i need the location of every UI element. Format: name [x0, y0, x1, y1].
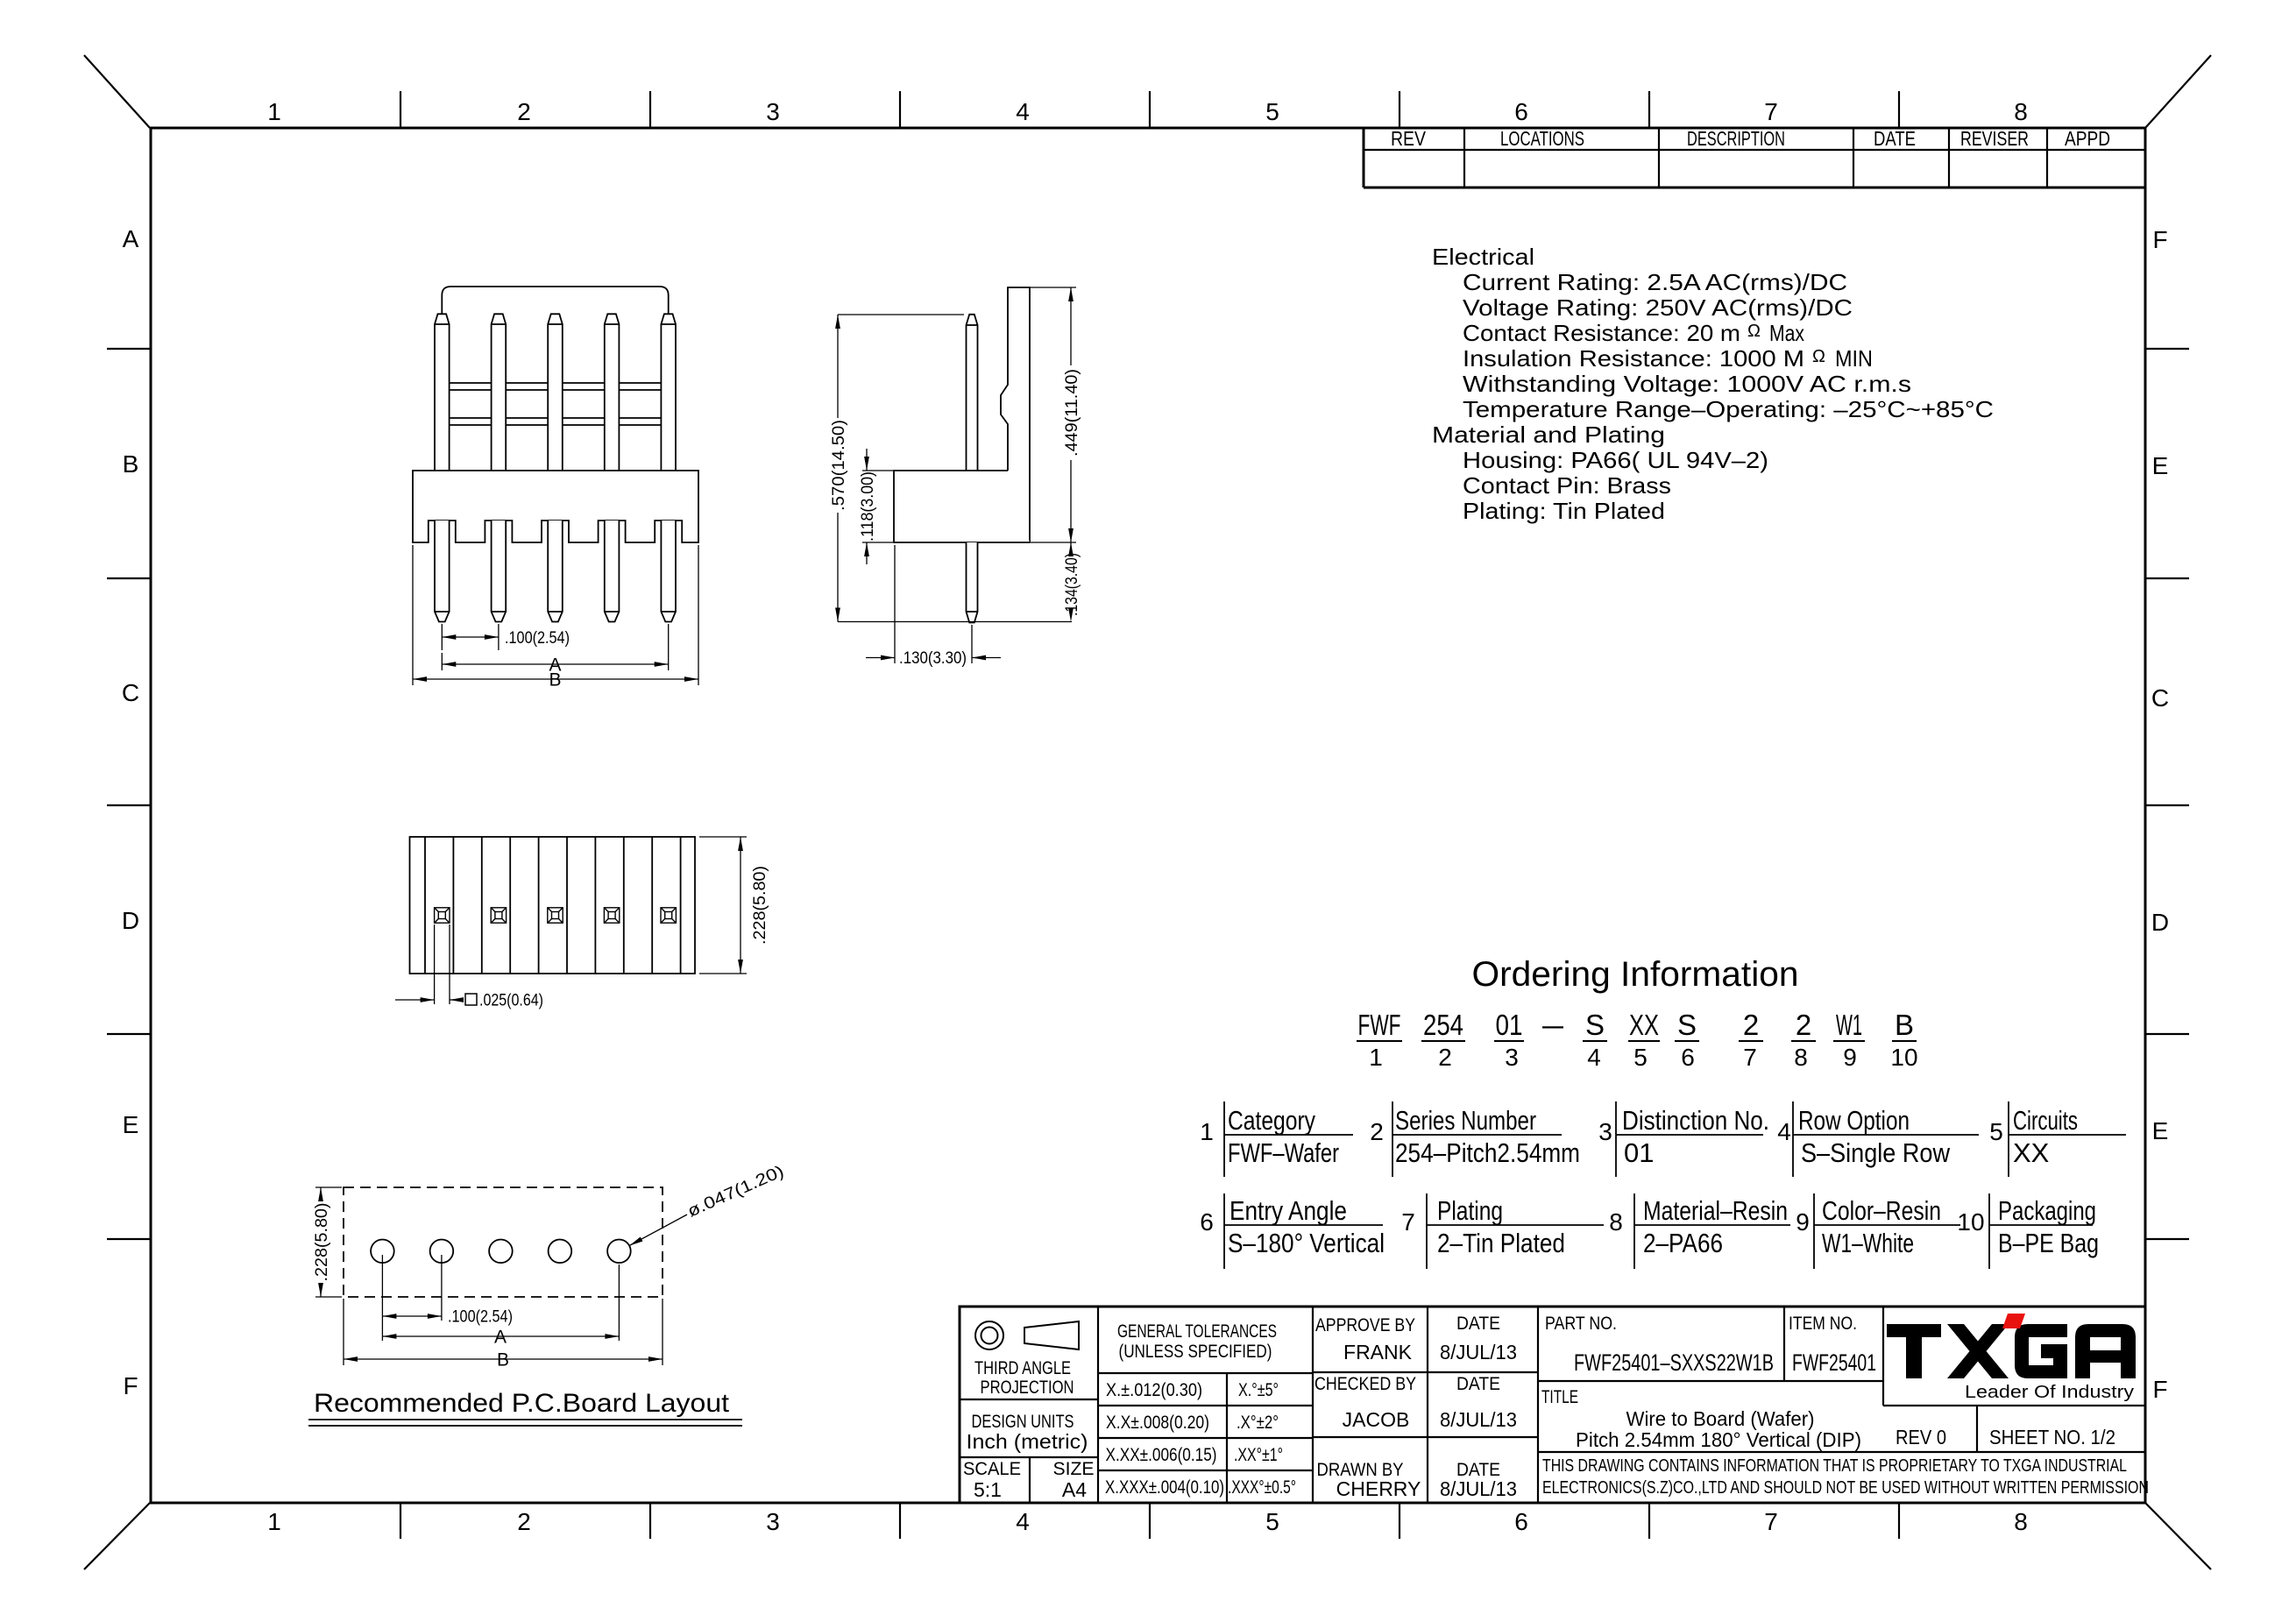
svg-text:D: D [122, 907, 139, 934]
svg-text:5:1: 5:1 [974, 1478, 1002, 1501]
svg-text:E: E [2152, 1117, 2169, 1144]
svg-text:XX: XX [2013, 1137, 2050, 1168]
svg-text:TITLE: TITLE [1541, 1387, 1578, 1407]
svg-text:5: 5 [1265, 1508, 1279, 1535]
svg-text:C: C [2151, 684, 2169, 712]
svg-text:3: 3 [766, 98, 780, 125]
svg-text:REV 0: REV 0 [1896, 1426, 1946, 1448]
svg-text:Ordering Information: Ordering Information [1472, 955, 1799, 994]
svg-text:254: 254 [1423, 1009, 1463, 1041]
svg-text:JACOB: JACOB [1343, 1408, 1410, 1431]
svg-text:4: 4 [1587, 1044, 1601, 1071]
svg-text:5: 5 [1265, 98, 1279, 125]
svg-text:.XX°±1°: .XX°±1° [1234, 1445, 1283, 1465]
svg-text:FWF: FWF [1358, 1009, 1401, 1041]
svg-text:3: 3 [1598, 1118, 1612, 1145]
svg-text:FWF25401–SXXS22W1B: FWF25401–SXXS22W1B [1574, 1349, 1774, 1376]
svg-text:Housing: PA66( UL 94V–2): Housing: PA66( UL 94V–2) [1463, 447, 1768, 473]
svg-text:.570(14.50): .570(14.50) [830, 420, 848, 511]
svg-text:1: 1 [267, 1508, 281, 1535]
svg-text:Plating: Tin Plated: Plating: Tin Plated [1463, 498, 1665, 524]
svg-text:MIN: MIN [1835, 345, 1873, 372]
svg-text:X.XX±.006(0.15): X.XX±.006(0.15) [1106, 1445, 1217, 1465]
svg-text:4: 4 [1016, 1508, 1030, 1535]
svg-text:DESCRIPTION: DESCRIPTION [1687, 127, 1785, 150]
svg-text:Wire to Board (Wafer): Wire to Board (Wafer) [1626, 1407, 1815, 1430]
svg-text:1: 1 [1200, 1118, 1214, 1145]
svg-text:2: 2 [1796, 1009, 1811, 1041]
svg-text:CHECKED BY: CHECKED BY [1315, 1374, 1416, 1394]
svg-text:.XXX°±0.5°: .XXX°±0.5° [1228, 1477, 1296, 1498]
svg-text:2: 2 [1743, 1009, 1759, 1041]
svg-text:.118(3.00): .118(3.00) [859, 471, 877, 542]
svg-text:Current Rating: 2.5A AC(rms): Current Rating: 2.5A AC(rms)/DC [1463, 269, 1847, 295]
svg-text:(UNLESS SPECIFIED): (UNLESS SPECIFIED) [1119, 1342, 1272, 1362]
svg-text:3: 3 [766, 1508, 780, 1535]
svg-text:PART NO.: PART NO. [1545, 1314, 1617, 1334]
svg-text:6: 6 [1681, 1044, 1695, 1071]
svg-text:F: F [2152, 226, 2167, 253]
svg-text:W1: W1 [1836, 1009, 1862, 1041]
svg-text:Circuits: Circuits [2013, 1105, 2078, 1136]
svg-text:C: C [122, 679, 139, 706]
svg-text:S–Single Row: S–Single Row [1801, 1137, 1951, 1168]
svg-text:Material–Resin: Material–Resin [1643, 1195, 1788, 1226]
svg-text:X.±.012(0.30): X.±.012(0.30) [1106, 1380, 1202, 1400]
svg-text:GENERAL TOLERANCES: GENERAL TOLERANCES [1117, 1321, 1277, 1342]
svg-text:APPD: APPD [2065, 127, 2110, 150]
svg-text:E: E [2152, 452, 2169, 479]
svg-text:FRANK: FRANK [1343, 1341, 1413, 1363]
svg-text:3: 3 [1505, 1044, 1519, 1071]
svg-text:PROJECTION: PROJECTION [981, 1378, 1074, 1398]
svg-text:Leader Of Industry: Leader Of Industry [1965, 1383, 2134, 1402]
svg-text:.100(2.54): .100(2.54) [448, 1308, 513, 1327]
svg-text:8/JUL/13: 8/JUL/13 [1440, 1408, 1517, 1431]
svg-text:Withstanding Voltage: 1000V: Withstanding Voltage: 1000V AC r.m.s [1463, 371, 1911, 397]
svg-text:6: 6 [1200, 1208, 1214, 1236]
svg-text:CHERRY: CHERRY [1336, 1477, 1421, 1500]
svg-text:B: B [1895, 1009, 1914, 1041]
svg-text:REV: REV [1391, 127, 1427, 150]
svg-text:FWF–Wafer: FWF–Wafer [1228, 1137, 1339, 1168]
svg-text:Contact Pin: Brass: Contact Pin: Brass [1463, 472, 1671, 499]
svg-text:.134(3.40): .134(3.40) [1063, 553, 1081, 616]
svg-text:THIS DRAWING CONTAINS INFORMAT: THIS DRAWING CONTAINS INFORMATION THAT I… [1542, 1456, 2127, 1476]
svg-text:Voltage Rating: 250V AC(rms): Voltage Rating: 250V AC(rms)/DC [1463, 294, 1853, 321]
svg-text:7: 7 [1401, 1208, 1415, 1236]
svg-text:SCALE: SCALE [963, 1459, 1021, 1479]
svg-text:Entry Angle: Entry Angle [1229, 1195, 1347, 1226]
svg-text:Pitch 2.54mm 180° Vertical: Pitch 2.54mm 180° Vertical (DIP) [1576, 1428, 1861, 1451]
svg-text:10: 10 [1890, 1044, 1917, 1071]
svg-text:B: B [497, 1350, 509, 1371]
svg-text:Insulation Resistance: 1000: Insulation Resistance: 1000 M [1463, 345, 1804, 372]
svg-text:Ω: Ω [1747, 322, 1761, 341]
svg-text:XX: XX [1629, 1009, 1659, 1041]
svg-text:DATE: DATE [1456, 1314, 1500, 1334]
svg-text:E: E [123, 1111, 139, 1138]
svg-text:SIZE: SIZE [1053, 1459, 1095, 1479]
svg-text:DATE: DATE [1456, 1374, 1500, 1394]
svg-text:APPROVE BY: APPROVE BY [1315, 1315, 1415, 1335]
svg-text:DESIGN UNITS: DESIGN UNITS [972, 1412, 1074, 1432]
svg-text:.449(11.40): .449(11.40) [1063, 369, 1081, 457]
svg-text:9: 9 [1843, 1044, 1857, 1071]
svg-text:Recommended P.C.Board Layout: Recommended P.C.Board Layout [314, 1389, 730, 1418]
svg-text:7: 7 [1764, 1508, 1778, 1535]
svg-text:9: 9 [1796, 1208, 1810, 1236]
svg-text:10: 10 [1957, 1208, 1984, 1236]
svg-text:A: A [494, 1328, 507, 1348]
svg-text:2: 2 [517, 98, 531, 125]
svg-text:4: 4 [1016, 98, 1030, 125]
svg-text:B: B [123, 450, 139, 478]
svg-text:2–Tin Plated: 2–Tin Plated [1437, 1228, 1565, 1258]
svg-text:THIRD ANGLE: THIRD ANGLE [974, 1358, 1071, 1378]
svg-text:B: B [549, 670, 561, 691]
svg-text:SHEET NO. 1/2: SHEET NO. 1/2 [1989, 1426, 2115, 1448]
svg-text:—: — [1542, 1009, 1563, 1041]
svg-text:X.XXX±.004(0.10): X.XXX±.004(0.10) [1105, 1477, 1224, 1498]
svg-text:5: 5 [1633, 1044, 1648, 1071]
svg-text:Category: Category [1228, 1105, 1315, 1136]
svg-text:Distinction No.: Distinction No. [1622, 1105, 1769, 1136]
svg-text:F: F [2152, 1376, 2167, 1403]
svg-text:7: 7 [1764, 98, 1778, 125]
svg-text:Temperature Range–Operating:: Temperature Range–Operating: –25°C~+85°C [1463, 396, 1994, 422]
svg-text:.025(0.64): .025(0.64) [479, 992, 543, 1010]
svg-text:8/JUL/13: 8/JUL/13 [1440, 1341, 1517, 1363]
svg-text:.X°±2°: .X°±2° [1237, 1413, 1279, 1433]
svg-text:DATE: DATE [1874, 127, 1916, 150]
svg-text:A: A [123, 225, 139, 252]
svg-text:ITEM NO.: ITEM NO. [1789, 1314, 1857, 1334]
svg-text:F: F [123, 1372, 138, 1399]
svg-text:2–PA66: 2–PA66 [1643, 1228, 1723, 1258]
svg-text:B–PE Bag: B–PE Bag [1998, 1228, 2099, 1258]
svg-text:Inch (metric): Inch (metric) [967, 1430, 1088, 1453]
svg-text:Max: Max [1769, 320, 1804, 346]
svg-text:Row Option: Row Option [1798, 1105, 1910, 1136]
svg-text:ELECTRONICS(S.Z)CO.,LTD AND SH: ELECTRONICS(S.Z)CO.,LTD AND SHOULD NOT B… [1542, 1478, 2149, 1498]
svg-text:S: S [1585, 1009, 1605, 1041]
svg-text:2: 2 [1438, 1044, 1452, 1071]
svg-text:X.°±5°: X.°±5° [1238, 1380, 1279, 1400]
svg-text:.228(5.80): .228(5.80) [751, 866, 769, 945]
svg-text:Ω: Ω [1812, 347, 1825, 366]
svg-text:6: 6 [1514, 98, 1528, 125]
svg-text:8/JUL/13: 8/JUL/13 [1440, 1477, 1517, 1500]
svg-text:Material and Plating: Material and Plating [1432, 421, 1665, 448]
svg-text:D: D [2151, 909, 2169, 936]
svg-text:Contact Resistance: 20 m: Contact Resistance: 20 m [1463, 320, 1740, 346]
svg-text:01: 01 [1624, 1137, 1654, 1168]
svg-text:6: 6 [1514, 1508, 1528, 1535]
svg-text:2: 2 [1370, 1118, 1384, 1145]
svg-text:REVISER: REVISER [1960, 127, 2029, 150]
svg-text:LOCATIONS: LOCATIONS [1500, 127, 1584, 150]
svg-text:Packaging: Packaging [1998, 1195, 2096, 1226]
svg-text:5: 5 [1989, 1118, 2003, 1145]
svg-text:.100(2.54): .100(2.54) [505, 629, 570, 648]
svg-text:FWF25401: FWF25401 [1792, 1349, 1876, 1376]
svg-text:254–Pitch2.54mm: 254–Pitch2.54mm [1395, 1137, 1580, 1168]
svg-text:1: 1 [267, 98, 281, 125]
svg-text:Electrical: Electrical [1432, 244, 1534, 270]
svg-text:Plating: Plating [1437, 1195, 1503, 1226]
svg-text:Color–Resin: Color–Resin [1822, 1195, 1941, 1226]
svg-text:.228(5.80): .228(5.80) [313, 1203, 331, 1282]
svg-text:7: 7 [1743, 1044, 1757, 1071]
svg-text:Series Number: Series Number [1395, 1105, 1536, 1136]
svg-text:A4: A4 [1062, 1478, 1087, 1501]
svg-text:S: S [1677, 1009, 1697, 1041]
svg-text:8: 8 [1794, 1044, 1808, 1071]
svg-text:2: 2 [517, 1508, 531, 1535]
svg-text:1: 1 [1369, 1044, 1383, 1071]
svg-text:8: 8 [1609, 1208, 1623, 1236]
svg-text:X.X±.008(0.20): X.X±.008(0.20) [1106, 1413, 1209, 1433]
svg-text:8: 8 [2014, 1508, 2028, 1535]
svg-text:.130(3.30): .130(3.30) [899, 649, 967, 668]
svg-text:W1–White: W1–White [1822, 1228, 1914, 1258]
svg-text:8: 8 [2014, 98, 2028, 125]
svg-text:S–180° Vertical: S–180° Vertical [1228, 1228, 1385, 1258]
svg-text:4: 4 [1777, 1118, 1791, 1145]
svg-text:01: 01 [1496, 1009, 1523, 1041]
